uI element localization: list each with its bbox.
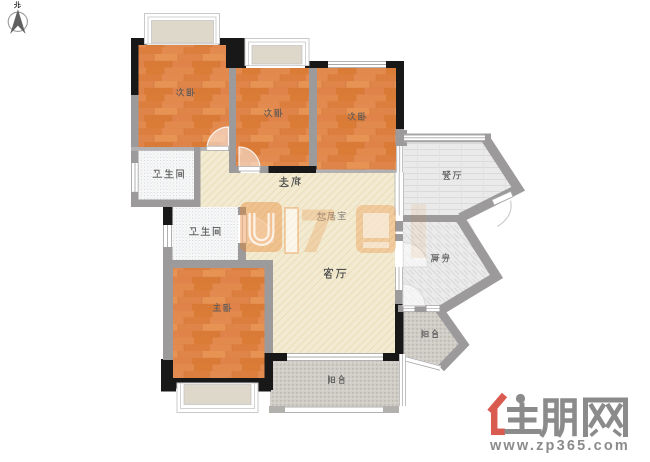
svg-text:www.zp365.com: www.zp365.com bbox=[489, 438, 630, 454]
